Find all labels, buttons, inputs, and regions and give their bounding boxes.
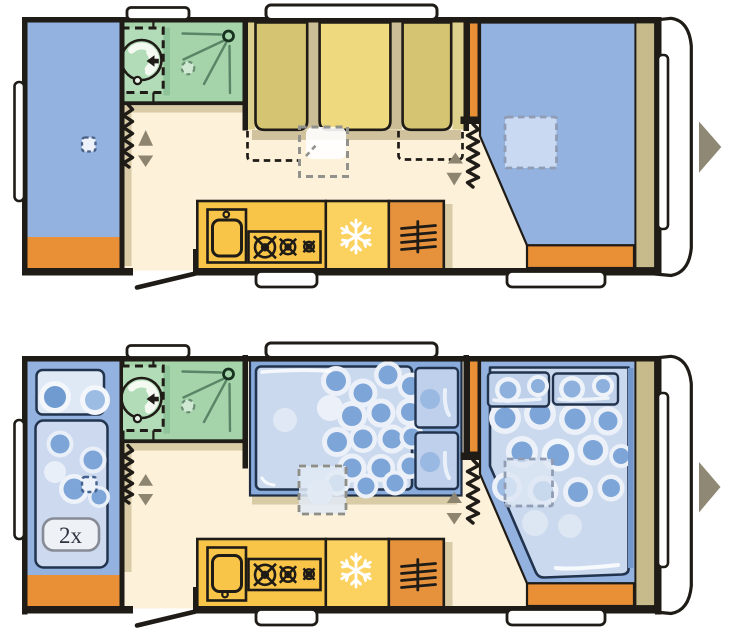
svg-text:2x: 2x [59, 523, 83, 548]
